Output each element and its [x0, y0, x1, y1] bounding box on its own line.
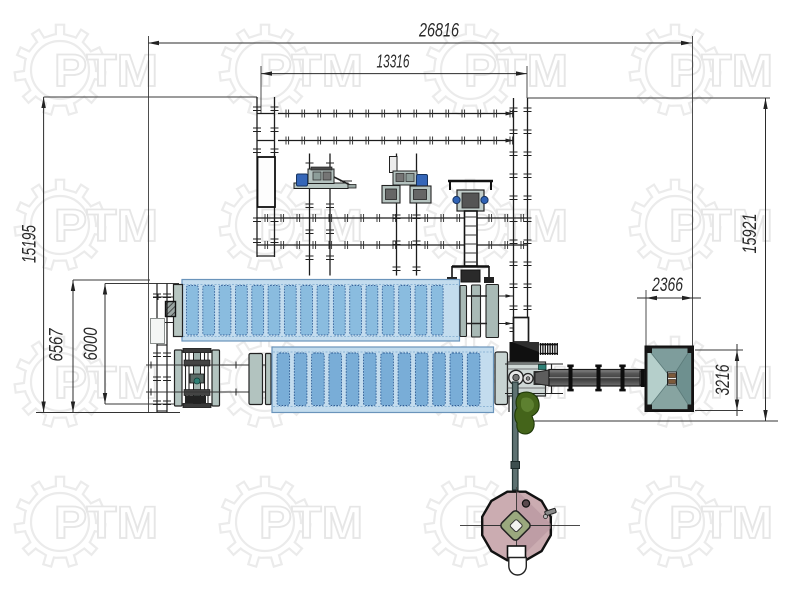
svg-text:3216: 3216 [713, 364, 734, 395]
svg-text:2366: 2366 [651, 275, 683, 296]
svg-text:15195: 15195 [20, 225, 41, 263]
svg-text:15921: 15921 [740, 214, 761, 254]
svg-text:6567: 6567 [47, 327, 68, 361]
svg-text:13316: 13316 [377, 51, 410, 72]
svg-text:6000: 6000 [81, 327, 102, 360]
svg-text:26816: 26816 [418, 21, 459, 42]
